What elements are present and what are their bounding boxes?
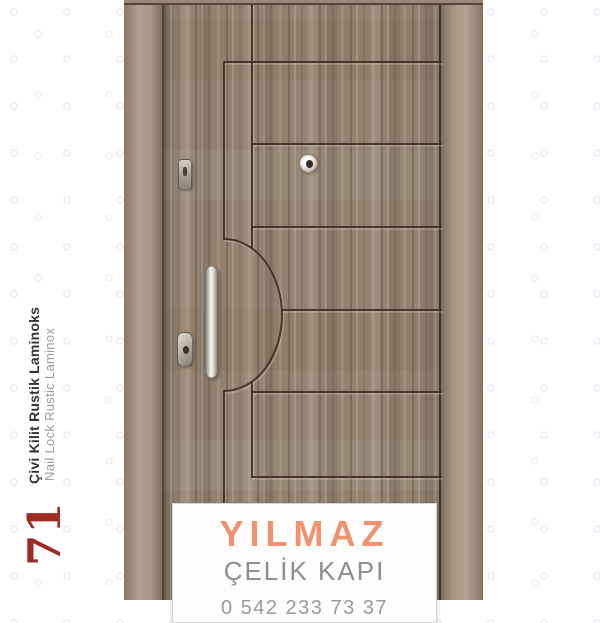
brand-name: YILMAZ: [173, 513, 436, 555]
catalog-page: { "sidebar": { "product_title_tr": "Çivi…: [0, 0, 600, 600]
door-frame-right: [441, 0, 483, 600]
lock-cylinder: [177, 332, 193, 367]
doorbell-button: [178, 159, 192, 190]
peephole: [299, 154, 318, 173]
product-number: 71: [18, 501, 71, 566]
dealer-label: YILMAZ ÇELİK KAPI 0 542 233 73 37: [172, 503, 437, 623]
door-frame-left: [124, 0, 162, 600]
brand-subtitle: ÇELİK KAPI: [173, 555, 436, 588]
door-pull-handle: [205, 266, 218, 378]
product-title-turkish: Çivi Kilit Rustik Laminoks: [26, 307, 42, 484]
product-title-english: Nail Lock Rustic Laminox: [42, 328, 57, 481]
